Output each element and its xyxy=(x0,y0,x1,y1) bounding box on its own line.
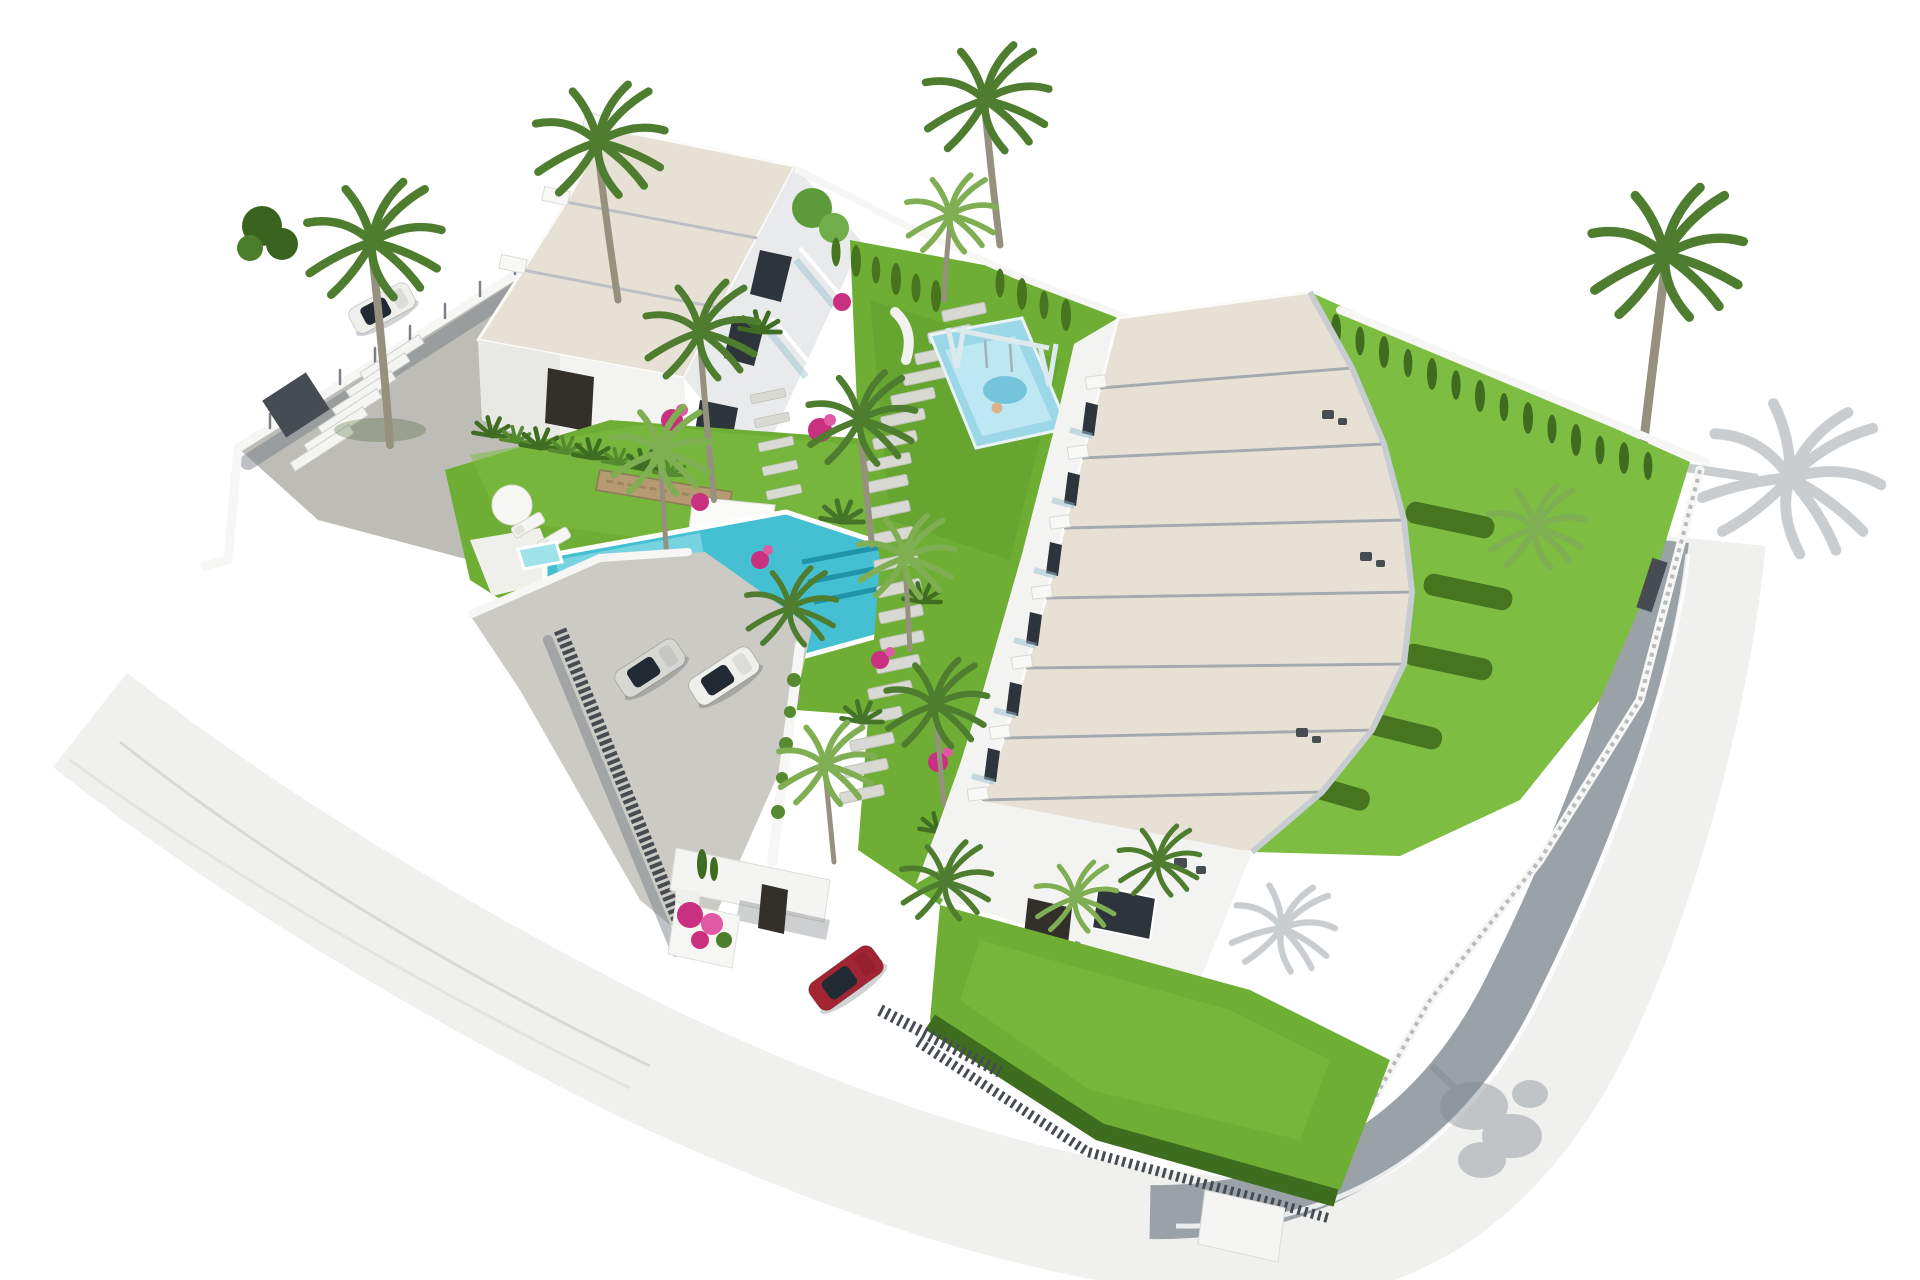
palm-tree xyxy=(747,568,837,645)
sun-lounger xyxy=(754,519,790,546)
roadside-wall xyxy=(1368,470,1700,1110)
stepped-path xyxy=(750,302,987,804)
palm-canopies xyxy=(372,45,1743,931)
roof-unit-2 xyxy=(523,202,757,308)
canopy-support-wall xyxy=(672,888,700,960)
facade-shaded-part xyxy=(478,340,560,452)
palm-tree xyxy=(1036,862,1117,931)
roof-unit xyxy=(1082,368,1384,458)
dining-table-pergola xyxy=(688,497,775,545)
facade-southwest xyxy=(478,340,690,470)
roadside-railing xyxy=(1368,470,1700,1110)
swimming-pool xyxy=(545,512,918,668)
roof-step-shadows xyxy=(982,368,1412,800)
parapet-jog xyxy=(542,186,570,205)
playground xyxy=(895,312,1068,448)
palm-trunk xyxy=(372,252,390,445)
entrance-canopy xyxy=(670,848,830,922)
background xyxy=(0,0,1920,1280)
facade-southeast-terraces xyxy=(684,166,862,470)
street-edge-line xyxy=(120,742,650,1066)
palm-tree xyxy=(1119,826,1200,895)
pool-steps xyxy=(802,546,901,602)
roof-unit-3 xyxy=(478,270,720,378)
pedestrian-gate xyxy=(758,884,788,934)
roof-unit xyxy=(1100,292,1352,388)
palm-tree xyxy=(886,660,987,746)
tree-shadow xyxy=(1432,1066,1548,1178)
palm-shadow xyxy=(1692,383,1896,569)
bougainvillea-planter xyxy=(677,902,732,949)
roof-unit-1 xyxy=(566,128,795,238)
terrace-opening xyxy=(750,250,792,302)
plaza-east-wall xyxy=(772,645,800,862)
roof-unit xyxy=(1064,444,1404,528)
box-hedges xyxy=(1246,462,1514,813)
garden-gate xyxy=(1636,558,1667,612)
kids-pool-water xyxy=(945,336,1052,436)
wall-vines xyxy=(771,673,801,819)
white-suv xyxy=(344,279,422,342)
boundary-wall xyxy=(552,252,668,322)
lawn-light-patch xyxy=(870,300,1060,560)
palm-tree xyxy=(536,85,665,195)
sun-lounger xyxy=(778,532,814,559)
conifer-boundary-row xyxy=(1331,314,1652,480)
parasol xyxy=(492,485,532,525)
building-b xyxy=(916,292,1412,980)
glass-balustrade xyxy=(768,260,834,377)
entrance-gate-fence xyxy=(880,1010,1000,1072)
roof-strips xyxy=(960,292,1412,858)
lawn xyxy=(445,420,930,720)
rear-gardens xyxy=(1246,292,1706,1110)
palm-tree xyxy=(646,282,758,378)
parking-plaza xyxy=(470,552,812,952)
swing-frame xyxy=(948,326,1056,386)
roof-fascia-east xyxy=(1252,292,1412,852)
palm-tree xyxy=(809,373,915,464)
stone-wall-joints xyxy=(606,481,726,501)
central-garden xyxy=(634,170,1128,905)
roof-unit xyxy=(960,792,1322,858)
ground-window xyxy=(693,400,738,452)
entry-door xyxy=(545,368,594,432)
terrace-opening xyxy=(724,316,765,366)
perimeter-roads xyxy=(70,540,1706,1240)
road-curb-line xyxy=(1176,554,1688,1226)
lawn xyxy=(850,240,1128,905)
boundary-wall xyxy=(205,448,238,566)
facade-south-end xyxy=(940,800,1252,980)
fence-shadow xyxy=(548,640,676,952)
entry-gate-panel xyxy=(262,372,330,437)
parapet-jog xyxy=(499,254,527,273)
palm-shadow-small xyxy=(1227,875,1341,978)
kids-pool xyxy=(930,318,1068,448)
canopy-shadow xyxy=(736,900,830,940)
palm-tree xyxy=(907,175,997,252)
roof-unit xyxy=(1004,664,1404,738)
pool-garden xyxy=(445,417,930,720)
pool-deck-wall xyxy=(472,552,688,614)
entrance xyxy=(668,848,1000,1072)
slide xyxy=(895,312,909,360)
boundary-wall xyxy=(238,252,552,448)
pool-shallow-end xyxy=(556,533,705,585)
render-canvas xyxy=(0,0,1920,1280)
gate-pillar xyxy=(1198,1190,1285,1262)
silver-sedan xyxy=(610,635,693,707)
terrace-furniture xyxy=(1174,410,1385,874)
boundary-wall xyxy=(1340,310,1706,462)
roof-unit xyxy=(1026,592,1412,668)
perimeter-hedge xyxy=(930,1022,1336,1198)
palm-tree xyxy=(779,723,874,805)
metal-picket-fence xyxy=(918,1042,1328,1218)
wall-shadow xyxy=(248,272,545,462)
kids-pool-deep xyxy=(983,376,1027,404)
roof-unit xyxy=(982,730,1372,800)
lawn xyxy=(930,905,1390,1190)
gravel-surface xyxy=(238,252,668,560)
balcony-glass xyxy=(972,430,1092,782)
street-edge-line xyxy=(70,760,630,1088)
palm-tree xyxy=(1489,486,1584,568)
parapet-jog xyxy=(583,112,611,131)
sun-lounger xyxy=(802,545,838,572)
building-a xyxy=(478,112,862,470)
lawn xyxy=(1252,292,1690,856)
north-boundary-wall xyxy=(798,170,1128,318)
parapet-jogs xyxy=(967,375,1106,802)
palm-tree xyxy=(859,516,954,598)
large-palm-tree xyxy=(1592,188,1743,318)
red-car xyxy=(803,941,892,1020)
swing-ropes xyxy=(985,340,1012,372)
balcony-rail xyxy=(772,248,840,366)
palm-shadow-trunk xyxy=(1648,462,1755,478)
lawn-light-patch xyxy=(470,425,880,560)
asphalt-road xyxy=(1150,540,1662,1212)
palm-tree xyxy=(611,407,712,493)
agave-hedge-row xyxy=(473,417,686,475)
corner-tree xyxy=(237,206,298,261)
outside-staircase xyxy=(290,335,424,472)
ground-window xyxy=(1092,886,1156,940)
cypress-hedge-row xyxy=(832,238,1072,331)
cypress-pair xyxy=(697,849,718,881)
sun-lounger xyxy=(536,526,571,553)
entry-door xyxy=(1022,898,1072,962)
sun-lounger xyxy=(510,511,545,538)
pool-deck xyxy=(470,528,560,596)
palm-tree xyxy=(307,182,441,297)
outer-sidewalk xyxy=(90,540,1706,1240)
white-sedan xyxy=(684,643,767,715)
planter-box xyxy=(668,902,740,968)
palm-tree xyxy=(902,842,992,919)
lawn-light-patch xyxy=(960,940,1330,1140)
gravel-parking-lot xyxy=(205,182,668,566)
child-figure xyxy=(992,403,1003,414)
palm-trunks xyxy=(598,110,1665,1110)
render-viewport xyxy=(0,0,1920,1280)
west-balconies xyxy=(972,402,1098,782)
banana-plants xyxy=(792,188,849,243)
palm-ground-shadow xyxy=(334,418,426,442)
spa-corner xyxy=(518,542,562,569)
driveway-fence xyxy=(560,630,688,944)
roof-step-shadow xyxy=(566,202,757,238)
stone-retaining-wall xyxy=(596,470,732,512)
bougainvillea-clusters xyxy=(634,293,953,772)
plaza-paving xyxy=(470,552,812,950)
cast-shadows xyxy=(1227,383,1896,1178)
facade-west xyxy=(916,318,1118,884)
palm-tree xyxy=(926,45,1049,151)
south-garden xyxy=(918,905,1390,1262)
glass-fence-posts xyxy=(270,260,515,428)
palmetto-shrubs xyxy=(681,312,956,832)
roof-step-shadow xyxy=(523,270,720,308)
roof-unit xyxy=(1046,520,1412,598)
